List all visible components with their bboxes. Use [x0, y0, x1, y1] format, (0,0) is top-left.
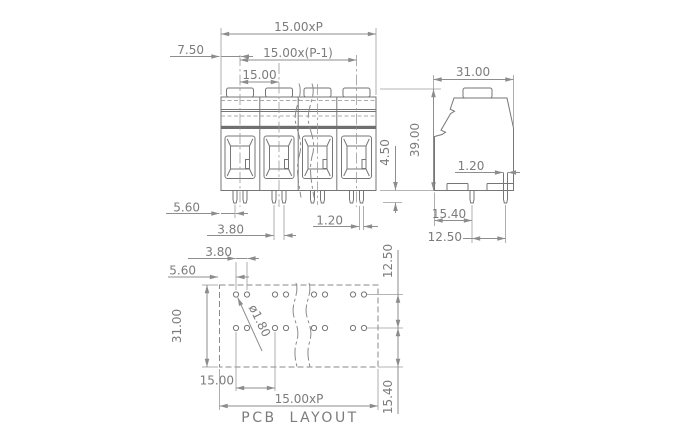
pcb-layout-view: 3.80 5.60 31.00 ø1.80 15.00 15.00xP 12.5…	[168, 244, 403, 426]
terminal-block-drawing: 15.00xP 15.00x(P-1) 15.00 7.50 5.60 3.80…	[0, 0, 680, 440]
dim-label-pin-width: 1.20	[316, 214, 343, 228]
side-view-dimensions: 31.00 1.20 15.40 12.50	[428, 65, 520, 244]
dim-label-board-width: 31.00	[170, 309, 184, 343]
dim-label-pitch: 15.00	[242, 68, 276, 82]
pcb-layout-caption: PCB LAYOUT	[241, 410, 359, 426]
side-view-body	[435, 88, 514, 203]
dim-label-row-spacing: 12.50	[381, 244, 395, 278]
dim-label-side-edge-to-pin: 15.40	[432, 207, 466, 221]
front-view-dimensions: 15.00xP 15.00x(P-1) 15.00 7.50 5.60 3.80…	[166, 20, 441, 240]
pcb-break-lines	[293, 283, 311, 367]
dim-label-edge-to-hole: 5.60	[169, 264, 196, 278]
dim-label-pin-length: 4.50	[378, 139, 392, 166]
front-view-pins	[233, 191, 364, 204]
pcb-dimensions: 3.80 5.60 31.00 ø1.80 15.00 15.00xP 12.5…	[168, 244, 403, 414]
dim-label-pitch-total: 15.00xP	[274, 20, 323, 34]
front-view-body	[221, 88, 376, 191]
dim-label-pitch-span: 15.00x(P-1)	[263, 46, 333, 60]
dim-label-side-pin-spacing: 12.50	[428, 230, 462, 244]
dim-label-side-pin-width: 1.20	[458, 159, 485, 173]
side-pin	[504, 191, 508, 204]
dim-label-hole-pair: 3.80	[205, 245, 232, 259]
dim-label-hole-diameter: ø1.80	[246, 302, 274, 339]
front-view: 15.00xP 15.00x(P-1) 15.00 7.50 5.60 3.80…	[166, 20, 441, 240]
dim-label-half-pitch: 7.50	[177, 43, 204, 57]
side-view: 31.00 1.20 15.40 12.50	[428, 65, 520, 244]
dim-label-row-to-edge: 15.40	[381, 380, 395, 414]
side-pin	[470, 191, 474, 204]
dim-label-side-width: 31.00	[456, 65, 490, 79]
dim-label-pcb-pitch-total: 15.00xP	[275, 392, 324, 406]
dim-label-pin-pair: 3.80	[217, 223, 244, 237]
technical-drawing-page: 15.00xP 15.00x(P-1) 15.00 7.50 5.60 3.80…	[0, 0, 680, 440]
dim-label-height: 39.00	[408, 123, 422, 157]
dim-label-pcb-pitch: 15.00	[200, 374, 234, 388]
dim-label-edge-to-pin: 5.60	[173, 201, 200, 215]
